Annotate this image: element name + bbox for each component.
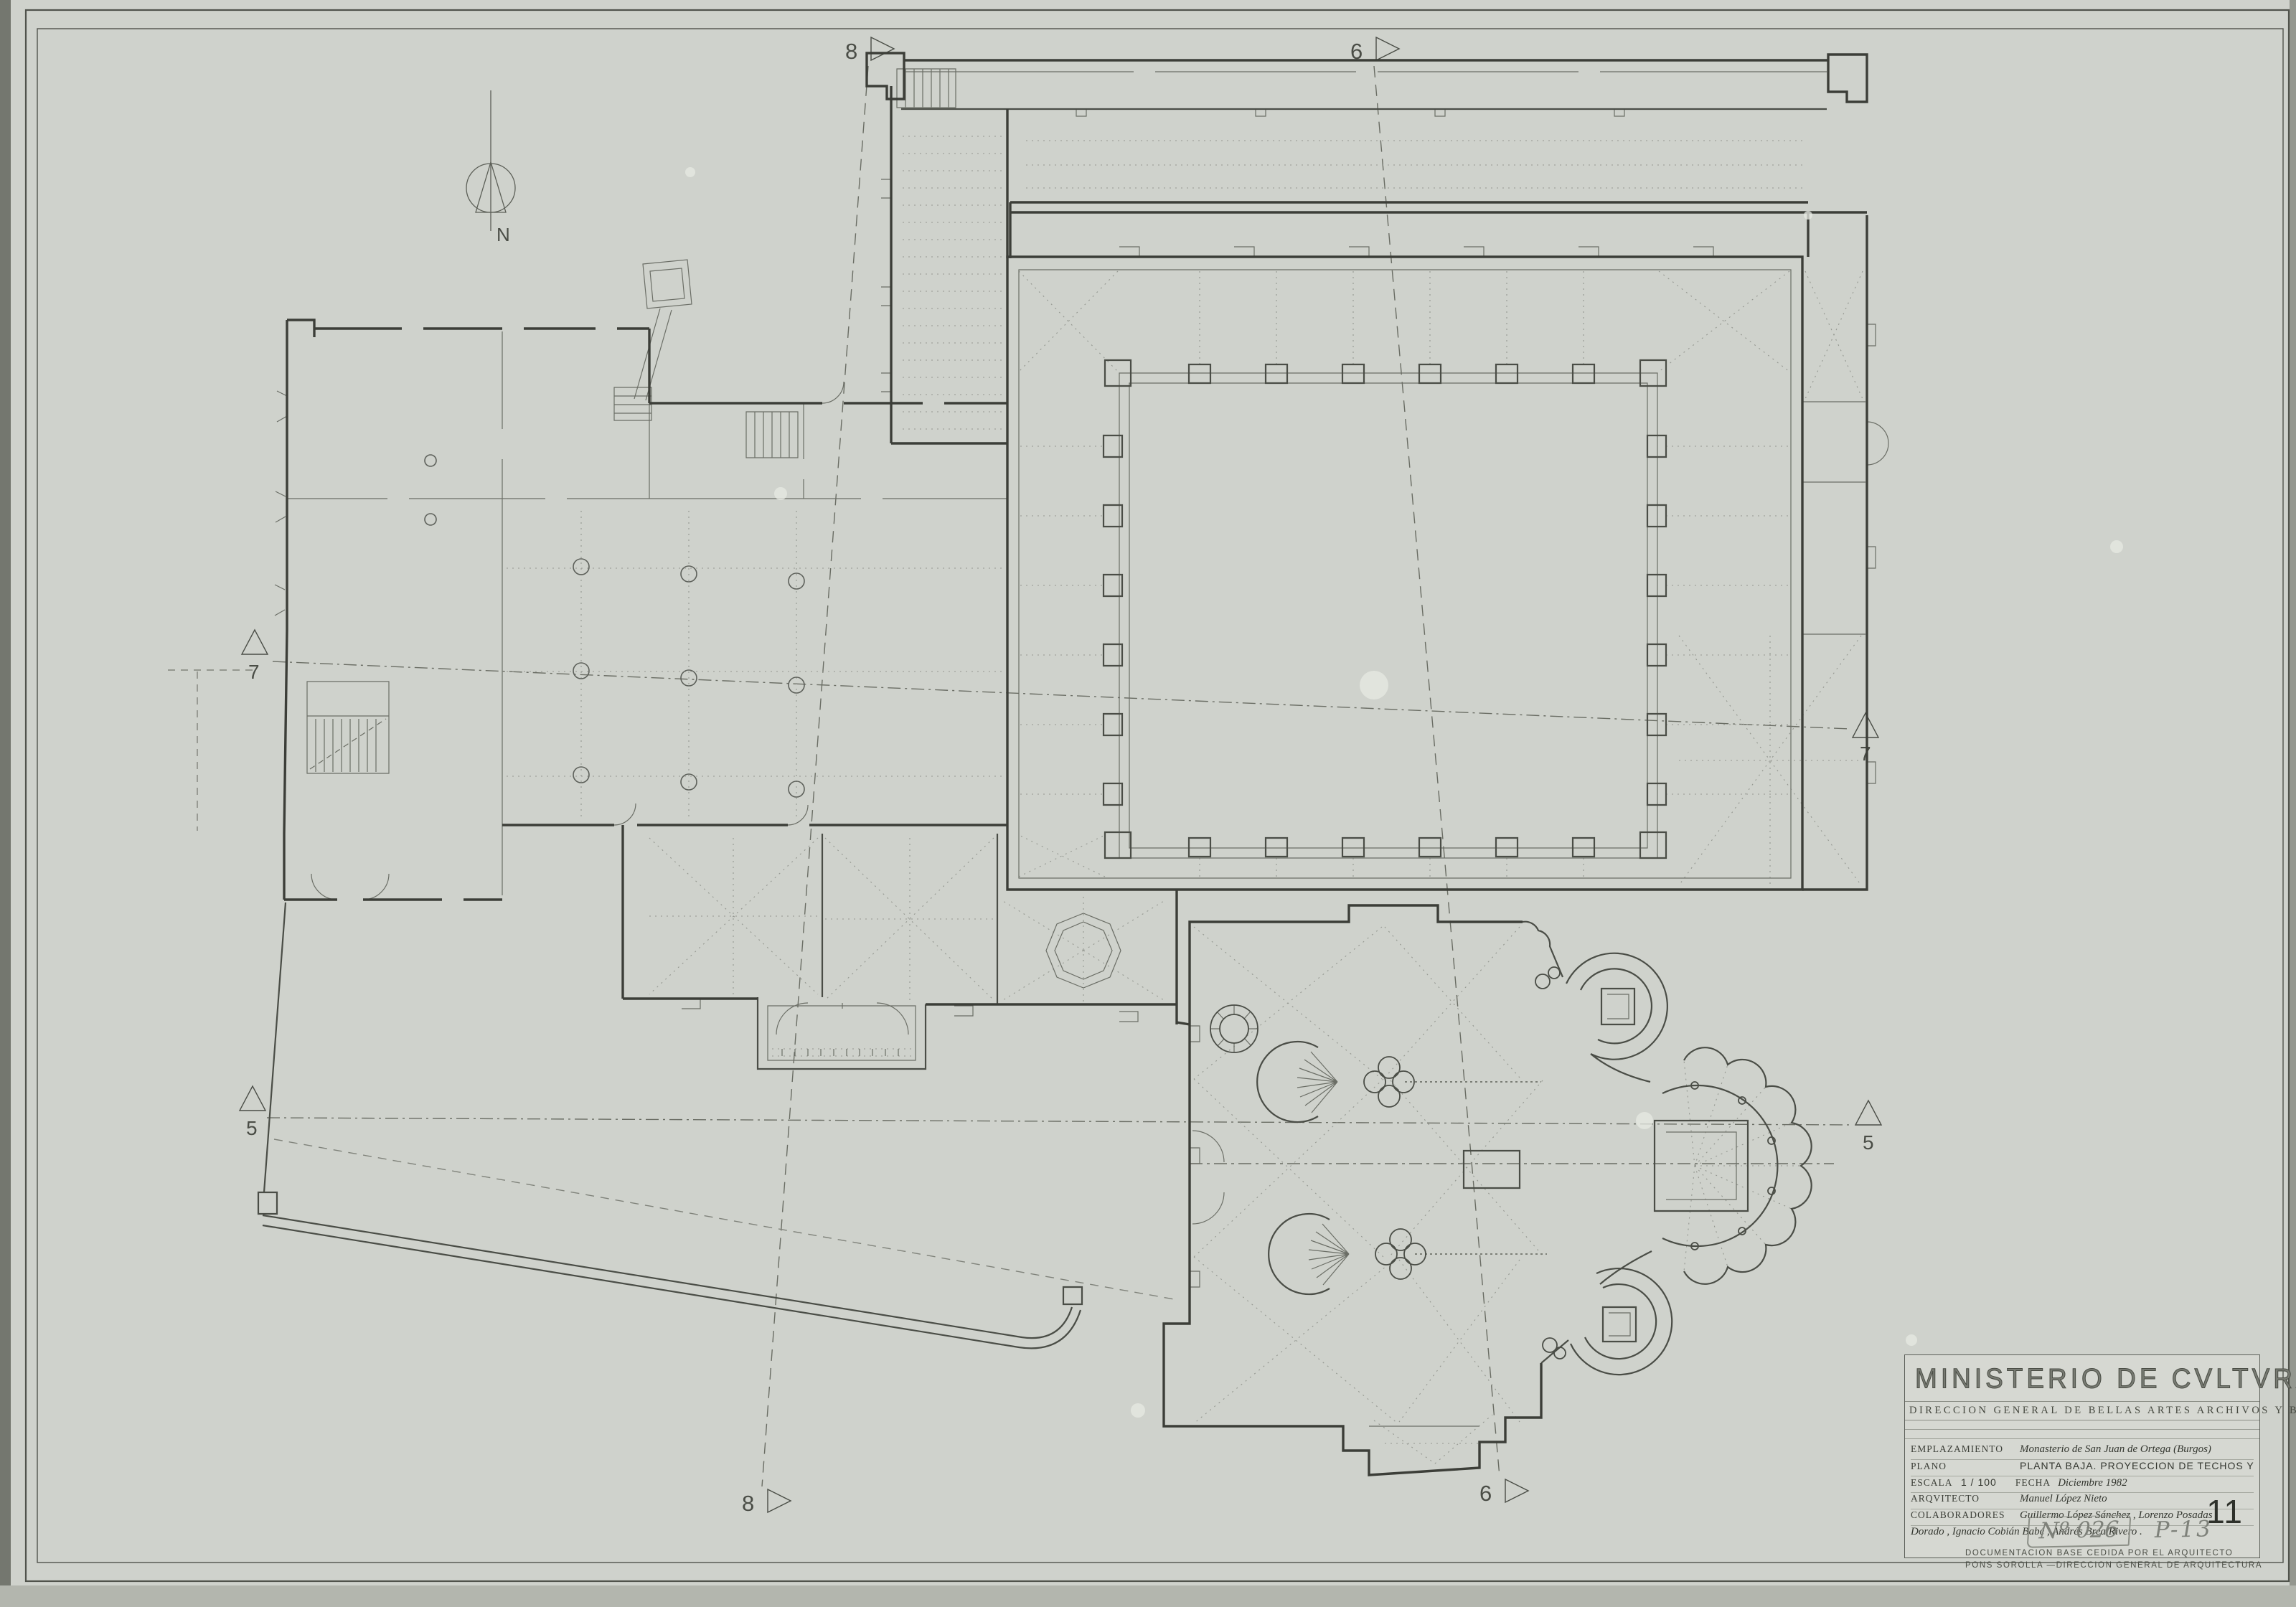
emplazamiento-label: EMPLAZAMIENTO xyxy=(1911,1443,2020,1455)
ruled-line xyxy=(1905,1420,2259,1430)
section-marker-7-left: 7 xyxy=(242,630,268,683)
title-block-header: MINISTERIO DE CVLTVRA xyxy=(1905,1355,2259,1402)
section-line-5 xyxy=(267,1118,1853,1125)
handwritten-note: Nº 026 P-13 xyxy=(2028,1513,2213,1547)
section-marker-8-top-label: 8 xyxy=(845,39,857,64)
footer-line-2: PONS SOROLLA —DIRECCION GENERAL DE ARQUI… xyxy=(1965,1560,2257,1572)
footer-line-1: DOCUMENTACION BASE CEDIDA POR EL ARQUITE… xyxy=(1965,1547,2257,1560)
section-marker-7-left-label: 7 xyxy=(248,661,260,683)
west-wing-walls xyxy=(284,320,1007,900)
church-walls xyxy=(1164,905,1541,1475)
projected-boundary-dash xyxy=(168,670,253,831)
colaboradores-label: COLABORADORES xyxy=(1911,1509,2020,1521)
fecha-value: Diciembre 1982 xyxy=(2058,1477,2127,1489)
garden-diagonal-dash xyxy=(274,1139,1178,1300)
north-label: N xyxy=(497,224,510,245)
section-marker-7-right: 7 xyxy=(1853,713,1878,765)
section-marker-5-right-label: 5 xyxy=(1863,1131,1874,1154)
plano-label: PLANO xyxy=(1911,1461,2020,1472)
field-plano: PLANO PLANTA BAJA. PROYECCION DE TECHOS … xyxy=(1911,1460,2254,1476)
thin-detail-lines xyxy=(275,69,1888,1426)
section-marker-8-bottom-label: 8 xyxy=(742,1491,754,1516)
emplazamiento-value: Monasterio de San Juan de Ortega (Burgos… xyxy=(2020,1443,2211,1456)
section-marker-8-bottom: 8 xyxy=(742,1489,791,1516)
section-marker-6-bottom-label: 6 xyxy=(1479,1481,1492,1506)
handwritten-page-ref: P-13 xyxy=(2154,1516,2213,1543)
scan-edge-bottom xyxy=(0,1585,2296,1607)
sheet-border-frame xyxy=(26,10,2289,1581)
arquitecto-value: Manuel López Nieto xyxy=(2020,1493,2107,1505)
ministry-title: MINISTERIO DE CVLTVRA xyxy=(1915,1363,2296,1395)
section-marker-5-left: 5 xyxy=(240,1086,265,1139)
column-circles xyxy=(425,455,804,797)
escala-value: 1 / 100 xyxy=(1961,1476,1997,1488)
arquitecto-label: ARQVITECTO xyxy=(1911,1493,2020,1504)
medium-walls xyxy=(258,109,1827,1375)
chapel-band-walls xyxy=(623,825,1177,1024)
section-marker-5-left-label: 5 xyxy=(246,1117,258,1139)
connector-wall xyxy=(1177,1022,1190,1024)
ruled-line xyxy=(1905,1430,2259,1439)
main-walls xyxy=(284,53,1867,1475)
section-marker-6-bottom: 6 xyxy=(1479,1479,1528,1506)
section-line-7 xyxy=(273,661,1850,729)
escala-label: ESCALA xyxy=(1911,1477,1961,1489)
scan-edge-left xyxy=(0,0,11,1607)
upper-hall-south-wall xyxy=(1010,202,1867,258)
choir-screen-dotted xyxy=(1405,1082,1547,1254)
handwritten-ref-number: Nº 026 xyxy=(2027,1515,2132,1548)
refectory-walls xyxy=(891,86,1007,443)
section-line-6 xyxy=(1374,66,1500,1476)
north-compass: N xyxy=(466,90,515,245)
field-arquitecto: ARQVITECTO Manuel López Nieto xyxy=(1911,1493,2254,1509)
drawing-sheet: N 8 6 8 6 7 7 5 xyxy=(0,0,2296,1607)
department-title: DIRECCION GENERAL DE BELLAS ARTES ARCHIV… xyxy=(1905,1402,2259,1420)
stair-diagonal-dash xyxy=(310,719,386,769)
section-marker-7-right-label: 7 xyxy=(1860,743,1871,765)
plano-value: PLANTA BAJA. PROYECCION DE TECHOS Y BOVE… xyxy=(2020,1460,2254,1471)
section-lines xyxy=(168,66,1853,1486)
section-marker-8-top: 8 xyxy=(845,37,894,64)
section-marker-5-right: 5 xyxy=(1855,1101,1881,1154)
vault-projection-dotted-lines xyxy=(507,136,1863,1464)
pier-circles xyxy=(1210,967,1775,1359)
cloister-outer-walls xyxy=(1007,257,1802,890)
field-emplazamiento: EMPLAZAMIENTO Monasterio de San Juan de … xyxy=(1911,1443,2254,1460)
section-markers: 8 6 8 6 7 7 5 5 xyxy=(240,37,1881,1516)
fecha-label: FECHA xyxy=(2015,1477,2051,1489)
east-wing-walls xyxy=(1802,215,1867,890)
field-escala-fecha: ESCALA 1 / 100 FECHA Diciembre 1982 xyxy=(1911,1476,2254,1493)
top-band-right-block xyxy=(1828,55,1867,102)
